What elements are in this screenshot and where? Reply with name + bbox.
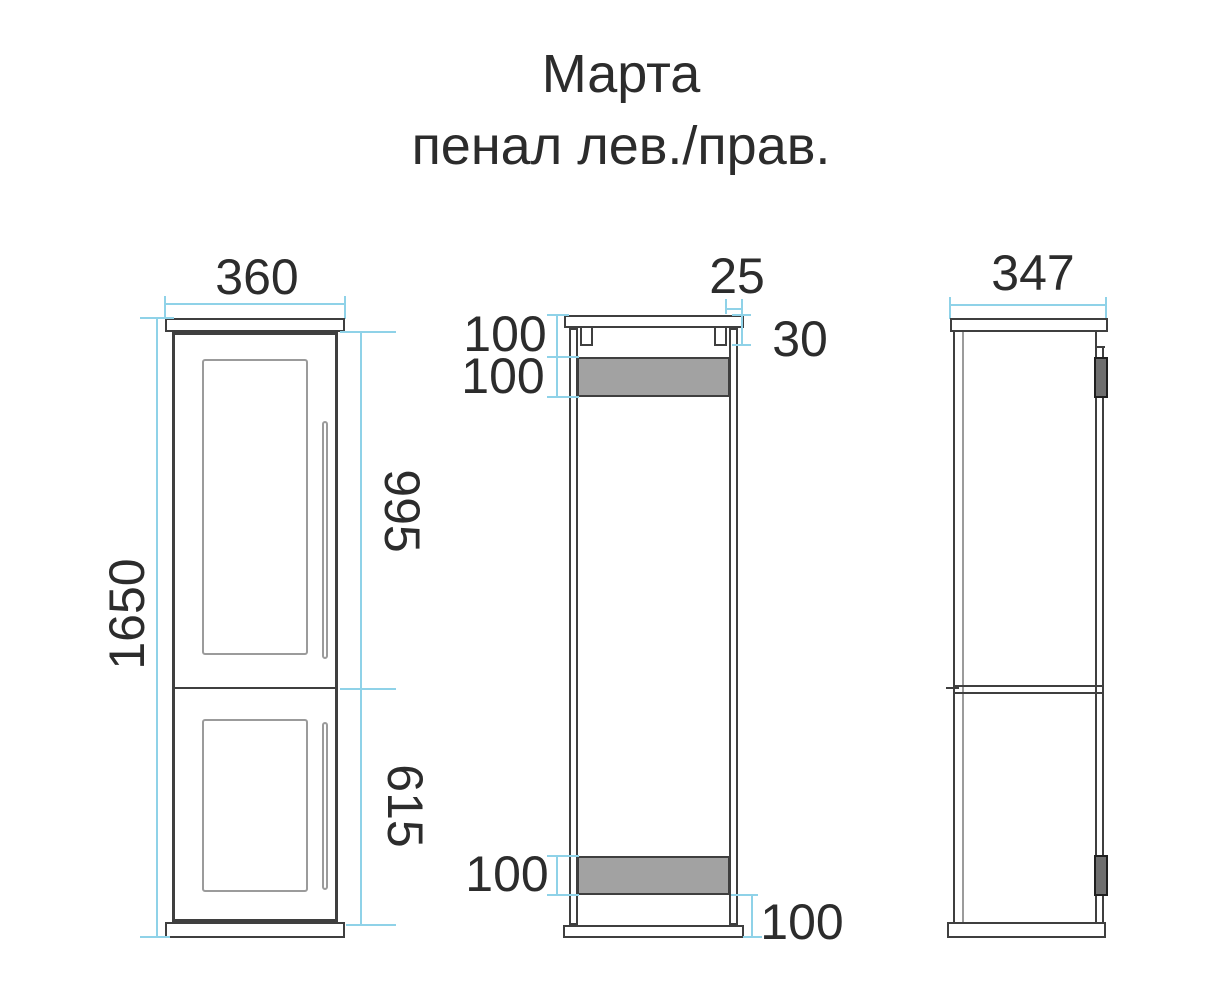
front-height-label: 1650 [103,514,153,714]
side-back-inner-line [962,332,964,922]
section-right-hanger-bracket [714,328,727,346]
side-hinge-top [1094,357,1108,398]
section-right-wall [729,328,738,925]
side-depth-label: 347 [973,249,1093,297]
front-width-dim-line [165,303,346,305]
section-lower-right-ext-top [731,894,758,896]
side-depth-dim-line [950,304,1107,306]
side-door-front-line [1102,347,1104,922]
section-bottom-offset-label: 100 [742,898,862,946]
side-divider-line-2 [955,692,1104,694]
side-depth-ext-left [949,297,951,319]
side-door-top-edge [1095,346,1105,348]
section-bottom-panel [563,925,744,938]
front-upper-ext-bottom [340,688,396,690]
section-top-rail-label: 100 [443,352,563,400]
front-bottom-plinth [165,922,345,938]
title-line-1: Марта [121,38,1121,110]
section-bottom-rail [577,856,730,895]
section-hanger-width-dim-line [726,308,742,310]
section-left-hanger-bracket [580,328,593,346]
front-width-label: 360 [197,253,317,301]
section-top-rail [577,357,730,397]
front-upper-dim-line [360,332,362,689]
front-lower-door-handle [322,722,328,890]
front-upper-door-handle [322,421,328,659]
title-line-2: пенал лев./прав. [121,110,1121,182]
technical-drawing: Марта пенал лев./прав. 360 1650 995 615 [0,0,1223,1000]
front-top-panel [165,318,345,332]
side-top-panel [950,318,1108,332]
section-left-wall [569,328,578,925]
front-lower-ext-bottom [346,924,396,926]
side-back-edge [953,332,955,922]
front-height-dim-line [156,318,158,938]
front-lower-door-panel [202,719,308,892]
front-lower-dim-line [360,689,362,925]
front-upper-door-panel [202,359,308,655]
side-divider-left-tick [946,687,959,689]
front-height-ext-bottom [140,936,170,938]
front-upper-ext-top [340,331,396,333]
side-bottom-plinth [947,922,1106,938]
front-height-ext-top [140,317,174,319]
section-hanger-height-label: 30 [740,315,860,363]
side-divider-line-1 [955,685,1104,687]
side-hinge-bottom [1094,855,1108,896]
section-hanger-width-ext-left [725,299,727,314]
side-door-back-line [1095,330,1097,922]
section-top-panel [564,315,744,328]
front-door-divider [172,687,338,689]
front-upper-door-label: 995 [376,411,426,611]
drawing-title: Марта пенал лев./прав. [121,38,1121,182]
side-depth-ext-right [1105,297,1107,319]
section-bottom-rail-label: 100 [447,850,567,898]
section-hanger-width-label: 25 [677,252,797,300]
front-width-ext-right [344,296,346,319]
front-lower-door-label: 615 [379,706,429,906]
front-width-ext-left [164,296,166,319]
